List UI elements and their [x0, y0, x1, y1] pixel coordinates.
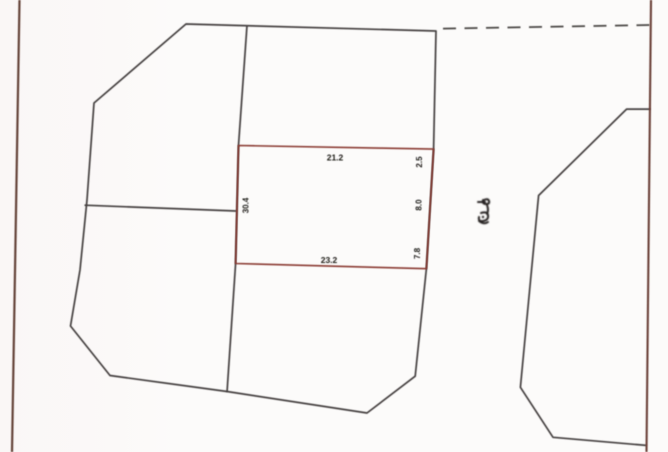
svg-text:21.2: 21.2	[327, 153, 344, 163]
svg-text:8.0: 8.0	[415, 199, 424, 211]
svg-text:30.4: 30.4	[241, 197, 250, 213]
svg-text:7.8: 7.8	[413, 247, 422, 259]
svg-text:23.2: 23.2	[321, 255, 338, 265]
svg-text:2.5: 2.5	[415, 156, 424, 168]
